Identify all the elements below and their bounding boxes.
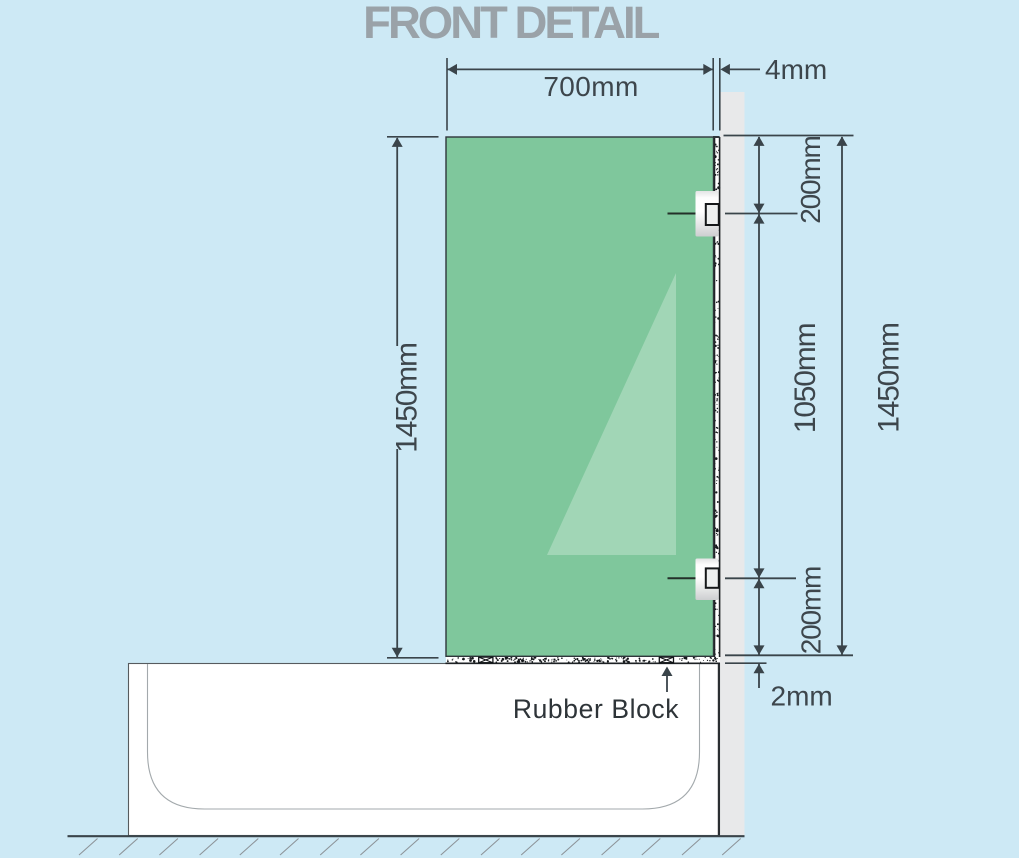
svg-text:Rubber Block: Rubber Block <box>513 694 679 724</box>
svg-text:200mm: 200mm <box>795 136 826 223</box>
svg-text:2mm: 2mm <box>771 681 833 712</box>
svg-text:1450mm: 1450mm <box>872 323 905 433</box>
svg-text:200mm: 200mm <box>796 567 827 654</box>
svg-text:4mm: 4mm <box>765 54 827 85</box>
svg-text:700mm: 700mm <box>543 71 638 102</box>
svg-text:FRONT DETAIL: FRONT DETAIL <box>363 0 659 48</box>
svg-text:1050mm: 1050mm <box>789 323 822 433</box>
svg-text:1450mm: 1450mm <box>391 343 424 453</box>
